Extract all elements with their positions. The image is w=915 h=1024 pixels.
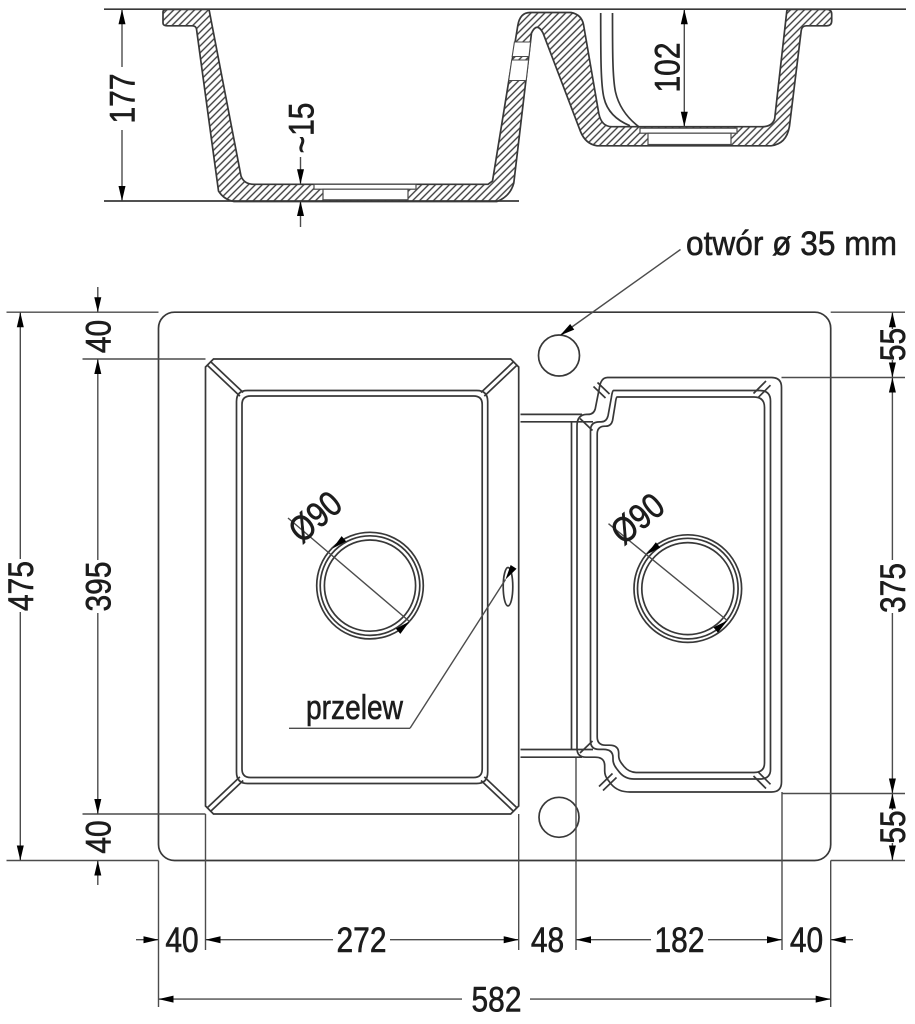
svg-text:55: 55 [873,810,913,843]
svg-text:40: 40 [78,820,118,853]
svg-text:182: 182 [655,920,705,960]
svg-text:55: 55 [873,328,913,361]
svg-text:~15: ~15 [281,103,321,154]
svg-text:przelew: przelew [306,689,403,728]
svg-text:375: 375 [873,563,913,613]
svg-text:475: 475 [1,561,41,611]
svg-text:48: 48 [531,920,564,960]
svg-text:otwór ø 35 mm: otwór ø 35 mm [686,225,897,264]
svg-text:395: 395 [78,562,118,612]
svg-text:102: 102 [647,43,687,93]
svg-text:40: 40 [165,920,198,960]
svg-text:177: 177 [102,74,142,124]
svg-text:582: 582 [472,979,522,1019]
svg-text:40: 40 [790,920,823,960]
svg-text:40: 40 [78,320,118,353]
svg-text:272: 272 [337,920,387,960]
